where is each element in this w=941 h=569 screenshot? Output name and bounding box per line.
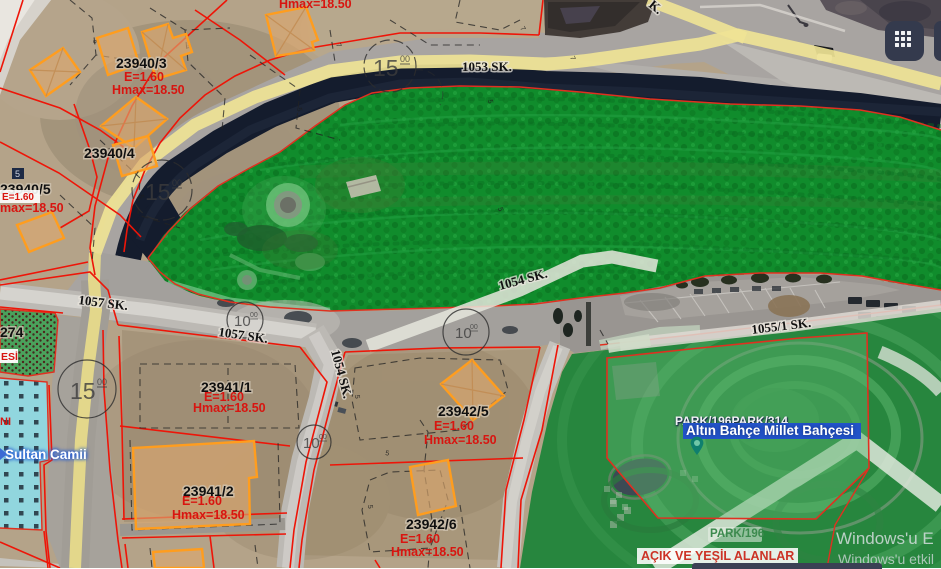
svg-text:Hmax=18.50: Hmax=18.50 (112, 83, 185, 97)
svg-text:1054 SK.: 1054 SK. (328, 348, 355, 400)
svg-text:NI: NI (0, 416, 11, 428)
svg-text:274: 274 (0, 324, 24, 340)
svg-text:Hmax=18.50: Hmax=18.50 (391, 545, 464, 559)
svg-text:E=1.60: E=1.60 (400, 532, 440, 546)
svg-text:23940/3: 23940/3 (116, 55, 167, 71)
svg-text:K.: K. (646, 0, 666, 17)
svg-text:E=1.60: E=1.60 (182, 494, 222, 508)
svg-text:E=1.60: E=1.60 (124, 70, 164, 84)
svg-text:ESİ: ESİ (1, 350, 18, 363)
svg-text:1057 SK.: 1057 SK. (78, 292, 129, 313)
svg-text:1055/1 SK.: 1055/1 SK. (751, 315, 812, 337)
svg-text:5: 5 (15, 169, 20, 179)
svg-text:23940/4: 23940/4 (84, 145, 135, 161)
svg-text:23942/5: 23942/5 (438, 403, 489, 419)
svg-text:E=1.60: E=1.60 (2, 192, 34, 203)
svg-text:E=1.60: E=1.60 (434, 419, 474, 433)
svg-text:Hmax=18.50: Hmax=18.50 (172, 508, 245, 522)
svg-text:Hmax=18.50: Hmax=18.50 (424, 433, 497, 447)
svg-text:23942/6: 23942/6 (406, 516, 457, 532)
svg-text:1054 SK.: 1054 SK. (497, 266, 549, 293)
svg-text:Hmax=18.50: Hmax=18.50 (279, 0, 352, 11)
svg-text:Hmax=18.50: Hmax=18.50 (193, 401, 266, 415)
svg-text:1053 SK.: 1053 SK. (462, 59, 512, 74)
svg-text:1057 SK.: 1057 SK. (218, 324, 269, 346)
svg-text:max=18.50: max=18.50 (0, 201, 64, 215)
